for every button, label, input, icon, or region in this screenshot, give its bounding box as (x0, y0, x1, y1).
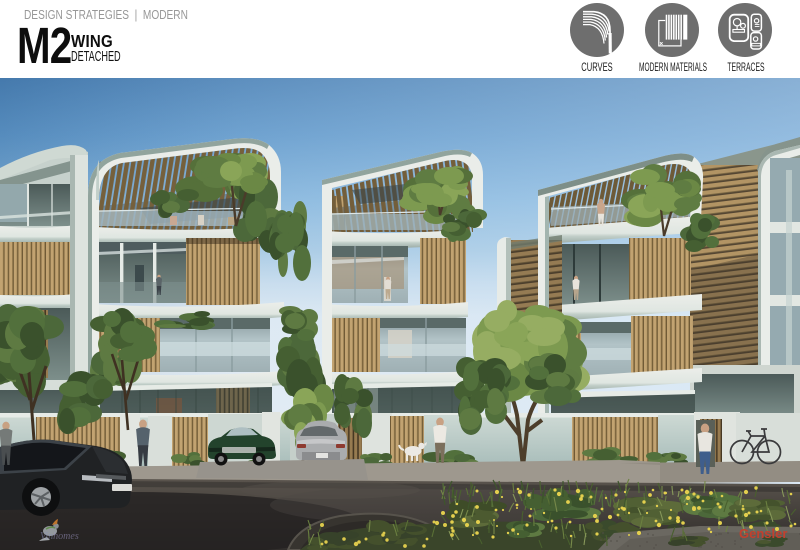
svg-text:Gensler: Gensler (739, 526, 787, 541)
svg-text:Vinhomes: Vinhomes (40, 531, 79, 542)
